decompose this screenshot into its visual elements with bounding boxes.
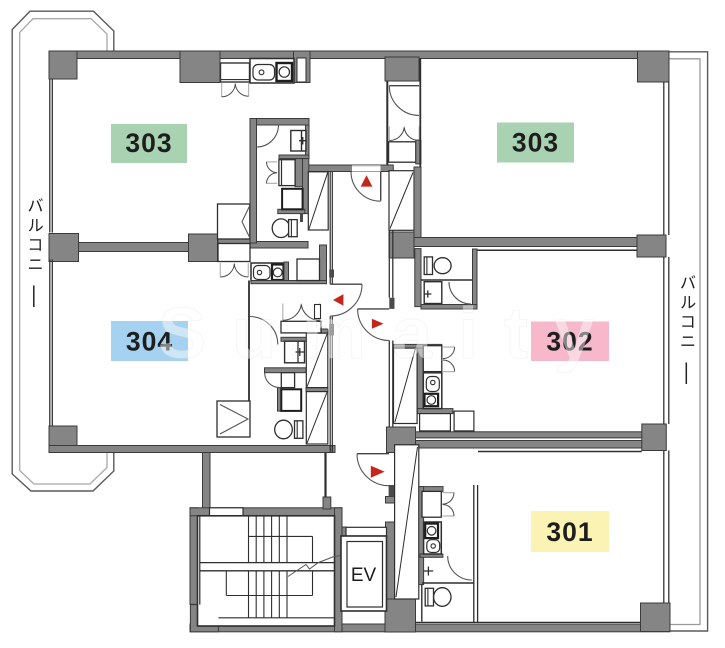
- svg-text:バルコニ: バルコニ: [25, 197, 43, 275]
- svg-text:301: 301: [546, 517, 593, 547]
- svg-text:303: 303: [125, 128, 172, 158]
- svg-text:バルコニ: バルコニ: [677, 274, 695, 352]
- svg-text:EV: EV: [351, 565, 377, 586]
- svg-text:Sumaity: Sumaity: [158, 294, 620, 374]
- svg-text:303: 303: [512, 128, 559, 158]
